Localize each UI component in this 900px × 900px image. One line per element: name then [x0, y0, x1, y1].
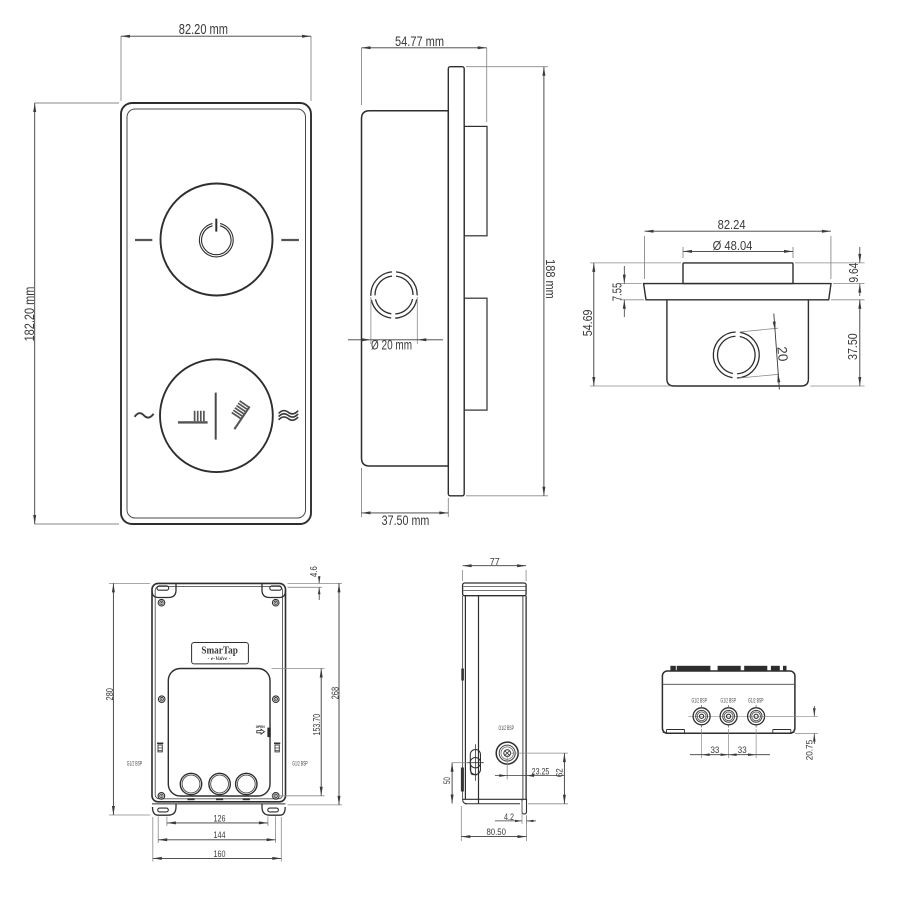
svg-text:82.24: 82.24 — [718, 217, 746, 232]
svg-text:20: 20 — [774, 346, 790, 362]
svg-text:4.2: 4.2 — [504, 812, 514, 823]
svg-text:Ø 48.04: Ø 48.04 — [713, 238, 753, 253]
svg-text:153.70: 153.70 — [312, 713, 323, 735]
svg-text:G1/2 BSP: G1/2 BSP — [721, 698, 736, 704]
svg-text:Ø 20 mm: Ø 20 mm — [371, 338, 412, 353]
svg-text:126: 126 — [214, 813, 226, 824]
svg-text:80.50: 80.50 — [486, 827, 506, 837]
svg-text:33: 33 — [738, 745, 747, 755]
svg-text:7.55: 7.55 — [611, 283, 625, 302]
svg-text:188 mm: 188 mm — [543, 259, 558, 299]
svg-text:G1/2 BSP: G1/2 BSP — [748, 698, 763, 704]
svg-text:9.64: 9.64 — [847, 263, 861, 283]
svg-text:268: 268 — [330, 687, 342, 700]
svg-text:50: 50 — [442, 777, 453, 784]
svg-text:182.20 mm: 182.20 mm — [21, 287, 37, 342]
svg-text:G1/2 BSP: G1/2 BSP — [499, 726, 514, 732]
svg-text:SmarTap: SmarTap — [201, 646, 238, 657]
svg-text:- e-Valve -: - e-Valve - — [208, 657, 231, 662]
svg-text:144: 144 — [214, 830, 226, 841]
svg-text:37.50 mm: 37.50 mm — [382, 513, 430, 528]
svg-text:4.6: 4.6 — [309, 566, 320, 577]
svg-text:62: 62 — [555, 768, 566, 777]
svg-text:280: 280 — [104, 688, 116, 701]
svg-text:77: 77 — [490, 557, 500, 568]
svg-text:20.75: 20.75 — [805, 740, 815, 760]
svg-text:82.20 mm: 82.20 mm — [179, 22, 228, 38]
svg-text:33: 33 — [710, 745, 719, 755]
svg-text:G1/2 BSP: G1/2 BSP — [692, 698, 707, 704]
svg-text:G1/2 BSP: G1/2 BSP — [292, 761, 307, 767]
svg-text:23.25: 23.25 — [532, 767, 550, 777]
svg-text:G1/2 BSP: G1/2 BSP — [127, 761, 142, 767]
svg-text:54.69: 54.69 — [580, 310, 595, 337]
svg-text:160: 160 — [214, 849, 226, 860]
svg-text:37.50: 37.50 — [846, 333, 860, 360]
svg-text:54.77 mm: 54.77 mm — [395, 33, 444, 49]
svg-text:OPEN: OPEN — [256, 725, 265, 729]
